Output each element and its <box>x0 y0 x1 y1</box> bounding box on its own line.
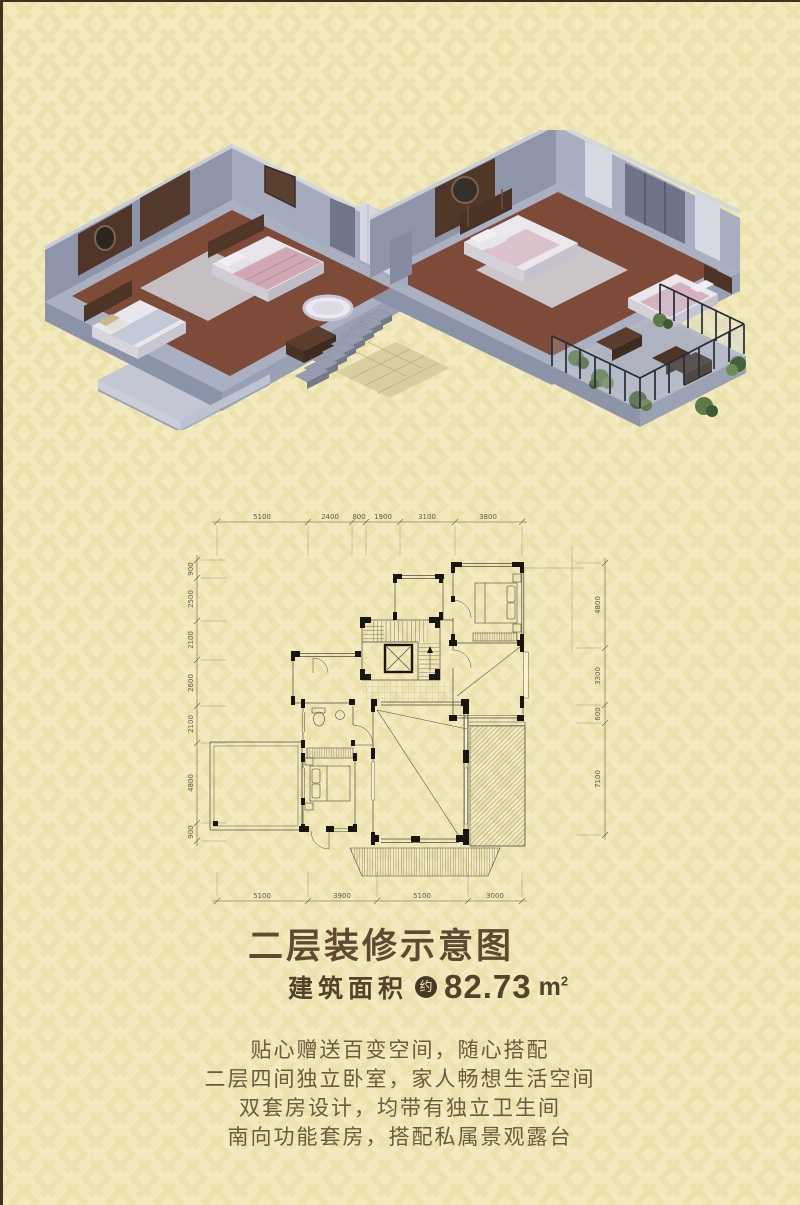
dim-label: 5100 <box>253 892 271 900</box>
dim-label: 1900 <box>374 513 392 521</box>
closet-top-right <box>473 633 517 641</box>
dim-label: 5100 <box>253 513 271 521</box>
dim-label: 5100 <box>413 892 431 900</box>
area-unit: m2 <box>539 973 568 1002</box>
hall-floor-tiles <box>363 681 453 702</box>
dim-label: 800 <box>352 513 365 521</box>
floor-plan-drawing: 5100 2400 800 1900 3100 3800 5100 3900 5… <box>180 500 620 920</box>
area-value: 82.73 <box>444 968 532 1006</box>
dim-label: 3000 <box>486 892 504 900</box>
area-unit-base: m <box>539 973 561 1001</box>
description-paragraph: 贴心赠送百变空间，随心搭配 二层四间独立卧室，家人畅想生活空间 双套房设计，均带… <box>0 1036 800 1152</box>
area-unit-exponent: 2 <box>561 973 568 988</box>
dim-label: 2500 <box>187 590 195 608</box>
dim-label: 900 <box>187 825 195 838</box>
dim-label: 900 <box>187 562 195 575</box>
dim-label: 7100 <box>594 770 602 788</box>
dimension-labels: 5100 2400 800 1900 3100 3800 5100 3900 5… <box>187 513 602 900</box>
dim-label: 2400 <box>321 513 339 521</box>
dim-label: 4800 <box>187 774 195 792</box>
description-line: 贴心赠送百变空间，随心搭配 <box>0 1036 800 1065</box>
bathtub <box>304 296 352 320</box>
bed-symbol-top-right <box>475 574 521 632</box>
dim-label: 2600 <box>187 674 195 692</box>
extension-lines <box>201 526 601 897</box>
dim-label: 4800 <box>594 596 602 614</box>
sink-symbol <box>336 711 345 720</box>
dim-label: 3900 <box>333 892 351 900</box>
dim-label: 600 <box>594 707 602 720</box>
dim-label: 3800 <box>479 513 497 521</box>
terrace-hatch <box>470 726 525 846</box>
toilet-symbol <box>312 708 325 726</box>
closet-bottom-left <box>307 748 353 758</box>
dim-label: 2100 <box>187 715 195 733</box>
description-line: 二层四间独立卧室，家人畅想生活空间 <box>0 1065 800 1094</box>
area-label: 建筑面积 <box>288 969 408 1005</box>
stair-treads-left <box>363 626 384 642</box>
area-line: 建筑面积 约 82.73 m2 <box>288 968 568 1006</box>
description-line: 双套房设计，均带有独立卫生间 <box>0 1094 800 1123</box>
page-edge-left <box>0 0 3 1205</box>
isometric-floorplan-render <box>40 130 760 430</box>
dim-label: 3300 <box>594 667 602 685</box>
approx-badge: 约 <box>415 976 437 998</box>
page-edge-top <box>0 0 800 2</box>
dim-label: 3100 <box>418 513 436 521</box>
description-line: 南向功能套房，搭配私属景观露台 <box>0 1123 800 1152</box>
roof-hatch-strip <box>350 848 500 876</box>
bed-symbol-bottom-left <box>305 758 350 810</box>
page-title: 二层装修示意图 <box>248 918 514 969</box>
dim-label: 2100 <box>187 631 195 649</box>
